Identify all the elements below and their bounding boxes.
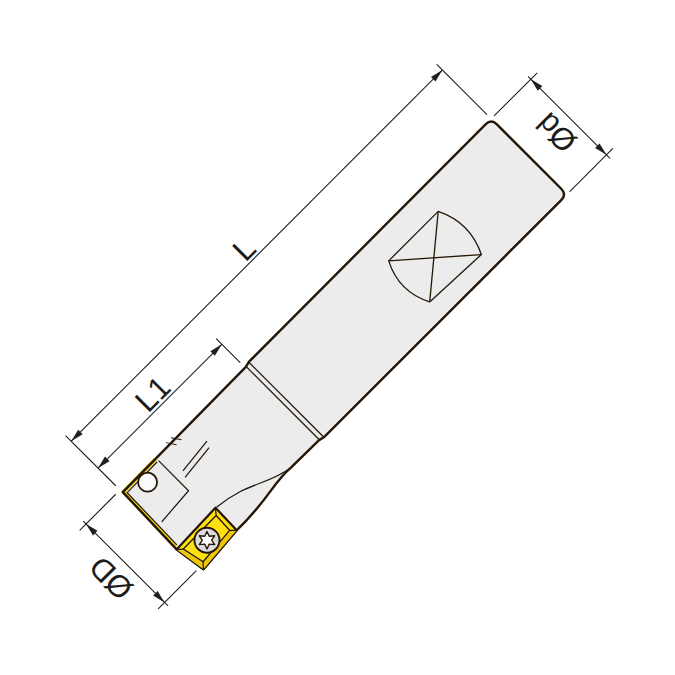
dim-label-shank-diameter: Ød — [530, 106, 584, 160]
tool-body — [119, 119, 573, 573]
ext-line-cut-d1 — [80, 494, 116, 530]
ext-line-neck — [216, 339, 240, 363]
ext-line-shank-top — [437, 64, 487, 114]
tool-group: L L1 Ød ØD — [0, 2, 619, 633]
tool-drawing-svg: L L1 Ød ØD — [0, 0, 675, 675]
dim-label-overall-length: L — [226, 231, 263, 268]
dim-label-cutting-diameter: ØD — [82, 549, 140, 607]
ext-line-cut-d2 — [158, 571, 196, 609]
drawing-canvas: L L1 Ød ØD — [0, 0, 675, 675]
